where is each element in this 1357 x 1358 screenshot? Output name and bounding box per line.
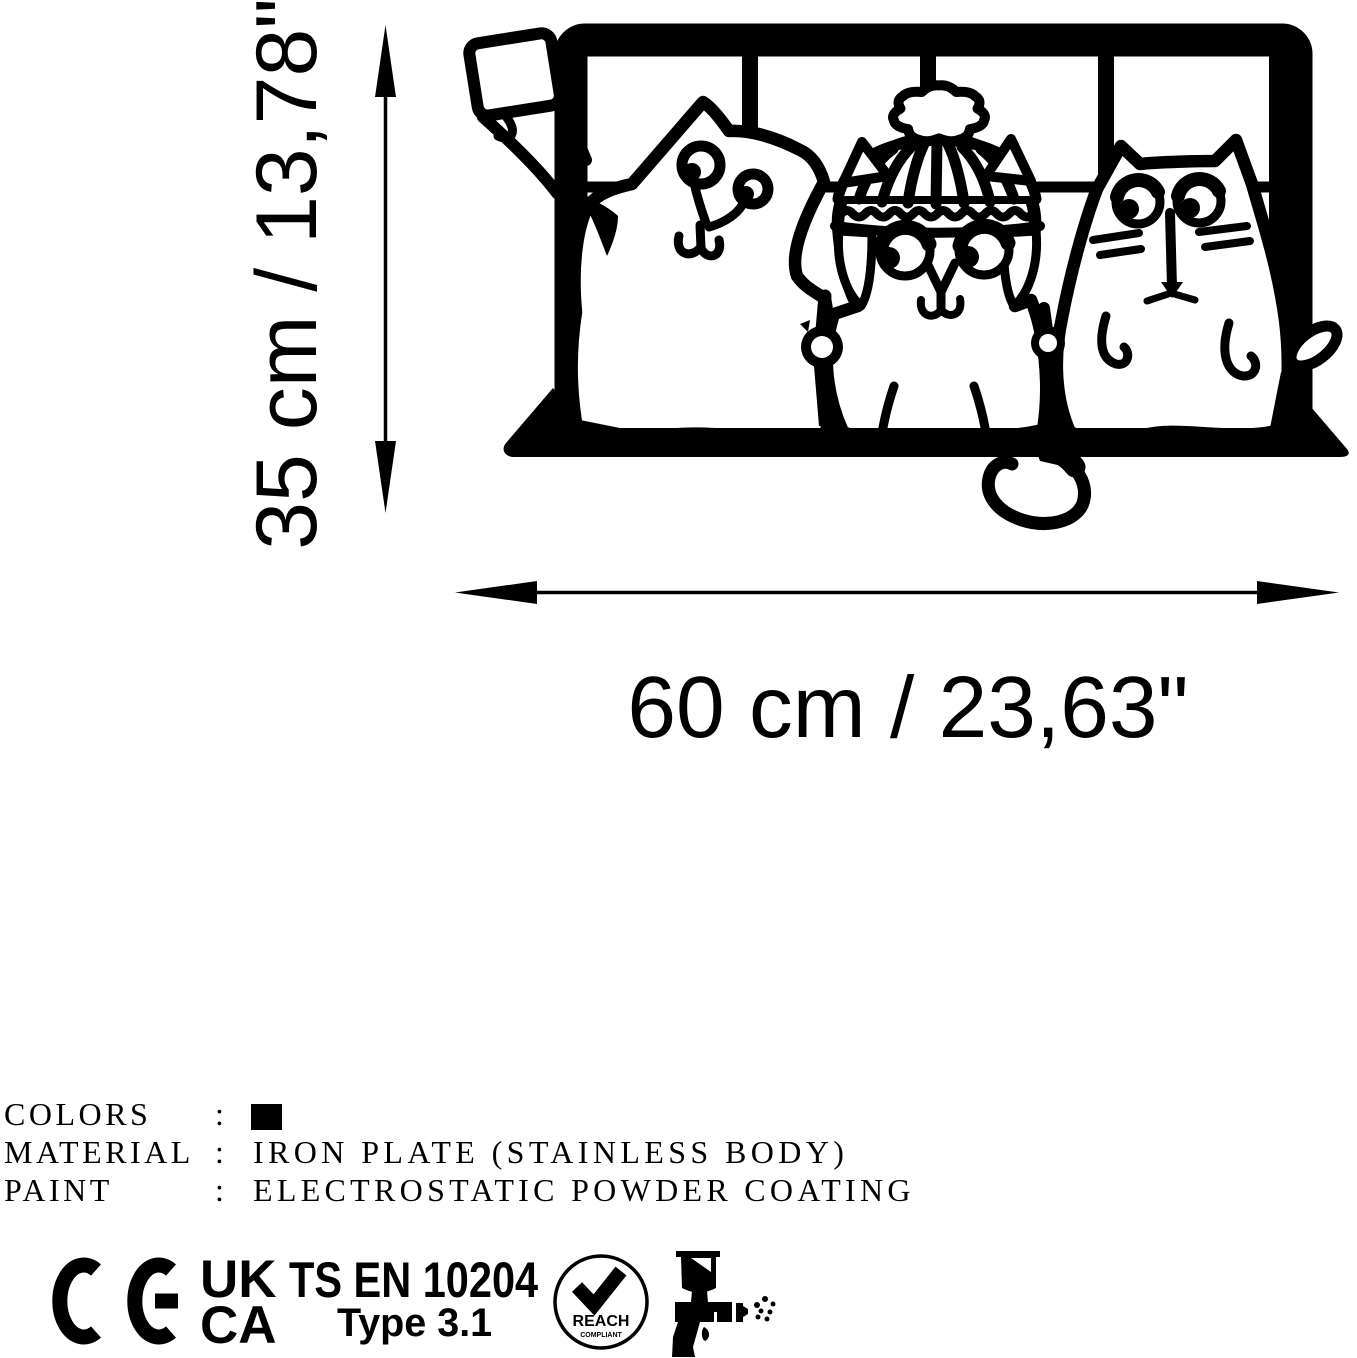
- svg-text:ELECTROSTATIC POWDER COATING: ELECTROSTATIC POWDER COATING: [253, 1172, 915, 1208]
- svg-text:Type 3.1: Type 3.1: [337, 1301, 492, 1345]
- svg-text:35 cm / 13,78": 35 cm / 13,78": [239, 0, 335, 550]
- svg-text:IRON PLATE (STAINLESS BODY): IRON PLATE (STAINLESS BODY): [253, 1134, 848, 1170]
- svg-text:REACH: REACH: [573, 1313, 630, 1330]
- svg-text:COMPLIANT: COMPLIANT: [580, 1332, 622, 1339]
- svg-text:TS EN 10204: TS EN 10204: [289, 1251, 538, 1308]
- svg-text:CA: CA: [200, 1296, 277, 1355]
- svg-text:COLORS: COLORS: [4, 1096, 151, 1132]
- svg-text:60 cm / 23,63": 60 cm / 23,63": [627, 658, 1188, 756]
- svg-text::: :: [215, 1172, 224, 1208]
- svg-text::: :: [215, 1134, 224, 1170]
- svg-text::: :: [215, 1096, 224, 1132]
- svg-text:PAINT: PAINT: [4, 1172, 113, 1208]
- svg-text:MATERIAL: MATERIAL: [4, 1134, 194, 1170]
